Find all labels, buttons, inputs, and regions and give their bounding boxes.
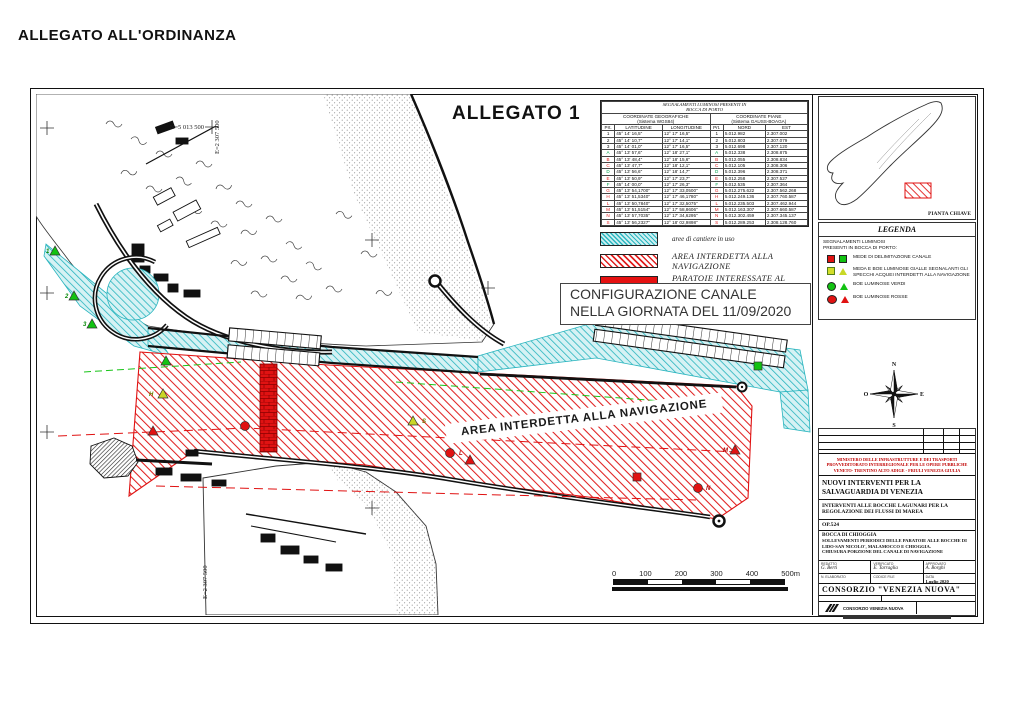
consortium-logo-text: CONSORZIO VENEZIA NUOVA — [843, 606, 904, 611]
scale-bar-base — [612, 587, 788, 591]
legenda-item-label: BOE LUMINOSE ROSSE — [853, 295, 908, 300]
legenda-icon-2 — [839, 268, 847, 275]
scale-tick-label: 400 — [746, 569, 759, 578]
scale-bar-segments — [613, 579, 785, 585]
key-map-label: PIANTA CHIAVE — [928, 211, 971, 217]
legenda-icon-1 — [827, 295, 837, 304]
footer-bar — [843, 615, 951, 619]
barrier-gates-column — [260, 364, 277, 452]
configuration-note: CONFIGURAZIONE CANALE NELLA GIORNATA DEL… — [560, 283, 811, 325]
data-cell: DATA Luglio 2020 — [923, 574, 975, 583]
green-square-marker — [754, 362, 762, 370]
op-code: OP.524 — [819, 519, 975, 530]
legenda-item: BOE LUMINOSE ROSSE — [823, 295, 971, 304]
consortium-name: CONSORZIO "VENEZIA NUOVA" — [819, 583, 975, 595]
grid-label-north: N=5 013 500 — [170, 124, 204, 131]
scale-tick-label: 100 — [639, 569, 652, 578]
marker-label: 2 — [64, 294, 69, 300]
sheet-number-title: ALLEGATO 1 — [452, 103, 581, 125]
compass-north-label: N — [892, 362, 897, 368]
scale-tick-label: 0 — [612, 569, 616, 578]
signature-cell: APPROVATO A. Borghi — [923, 561, 975, 573]
logo-row: CONSORZIO VENEZIA NUOVA — [819, 601, 975, 614]
red-buoy-marker — [694, 484, 703, 493]
scale-tick-label: 200 — [675, 569, 688, 578]
signals-table: SEGNALAMENTI LUMINOSI PRESENTI INBOCCA D… — [600, 100, 809, 227]
lagoon-outline — [819, 97, 973, 217]
marker-label: L — [459, 451, 463, 457]
green-triangle-marker — [87, 319, 97, 328]
ministry-line: VENETO- TRENTINO ALTO ADIGE - FRIULI VEN… — [819, 468, 975, 473]
map-legend-item: AREA INTERDETTA ALLA NAVIGAZIONE — [600, 250, 830, 272]
legenda-icon-2 — [840, 283, 848, 290]
legenda-title: LEGENDA — [819, 223, 975, 237]
subject-line-2: CHIUSURA PORZIONE DEL CANALE DI NAVIGAZI… — [822, 549, 972, 554]
legenda-item-label: MEDE DI DELIMITAZIONE CANALE — [853, 255, 931, 260]
key-map: PIANTA CHIAVE — [818, 96, 976, 220]
subject-line-1: SOLLEVAMENTI PERIODICI DELLE PARATOIE AL… — [822, 538, 972, 549]
key-map-highlight — [905, 183, 931, 198]
compass-rose: N E S O — [862, 356, 926, 430]
grid-label-east-top: E=2 307 500 — [214, 120, 221, 154]
signals-table-title: SEGNALAMENTI LUMINOSI PRESENTI INBOCCA D… — [602, 102, 808, 114]
legenda-item: BOE LUMINOSE VERDI — [823, 282, 971, 291]
scale-tick-label: 500m — [781, 569, 800, 578]
red-buoy-marker — [241, 422, 250, 431]
group-header-plane: COORDINATE PIANE(Sistema GAUSS-BOAGA) — [710, 113, 807, 125]
elaborato-cell: N. ELABORATO — [819, 574, 870, 583]
legend-swatch — [600, 254, 658, 268]
marker-label: N — [706, 486, 711, 492]
meta-row: N. ELABORATO CODICE FILE DATA Luglio 202… — [819, 573, 975, 583]
scale-bar: 0100200300400500m — [612, 569, 802, 591]
compass-west-label: O — [864, 392, 869, 398]
consortium-logo-icon — [824, 603, 840, 613]
red-square-marker — [633, 473, 641, 481]
legenda-item: MEDA E BOE LUMINOSE GIALLE SEGNALANTI GL… — [823, 267, 971, 278]
marker-label: 3 — [83, 322, 87, 328]
legenda-item: MEDE DI DELIMITAZIONE CANALE — [823, 255, 971, 263]
marker-label: S — [422, 419, 426, 425]
legenda-item-label: MEDA E BOE LUMINOSE GIALLE SEGNALANTI GL… — [853, 267, 971, 278]
page-title: ALLEGATO ALL'ORDINANZA — [18, 27, 236, 44]
grid-label-east-bottom: E=2 307 500 — [202, 565, 209, 599]
codice-cell: CODICE FILE — [870, 574, 922, 583]
compass-east-label: E — [920, 392, 924, 398]
legenda-subtitle: SEGNALAMENTI LUMINOSIPRESENTI IN BOCCA D… — [823, 240, 971, 251]
panel-divider — [812, 94, 813, 615]
table-row: S 45° 13' 56,2327" 12° 18' 02,9898" S 5.… — [602, 219, 808, 225]
marker-label: H — [149, 392, 154, 398]
signatures-row: REDATTO G. Berti VERIFICATO E. Tarraglia… — [819, 560, 975, 573]
red-buoy-marker — [446, 449, 455, 458]
legend-label: aree di cantiere in uso — [672, 235, 734, 243]
map-legend-item: aree di cantiere in uso — [600, 228, 830, 250]
legend-swatch — [600, 232, 658, 246]
legend-label: AREA INTERDETTA ALLA NAVIGAZIONE — [672, 251, 830, 271]
revision-strip — [819, 429, 975, 453]
scale-tick-label: 300 — [710, 569, 723, 578]
south-land — [203, 462, 438, 615]
drawing-subject: BOCCA DI CHIOGGIA SOLLEVAMENTI PERIODICI… — [819, 530, 975, 560]
legenda-item-label: BOE LUMINOSE VERDI — [853, 282, 906, 287]
project-subtitle: INTERVENTI ALLE BOCCHE LAGUNARI PER LA R… — [819, 499, 975, 519]
signature-cell: REDATTO G. Berti — [819, 561, 870, 573]
project-title: NUOVI INTERVENTI PER LA SALVAGUARDIA DI … — [819, 475, 975, 499]
title-block: MINISTERO DELLE INFRASTRUTTURE E DEI TRA… — [818, 428, 976, 616]
group-header-geographic: COORDINATE GEOGRAFICHE(Sistema WGS84) — [602, 113, 711, 125]
legenda-icon-2 — [841, 296, 849, 303]
ministry-heading: MINISTERO DELLE INFRASTRUTTURE E DEI TRA… — [819, 453, 975, 475]
signature-cell: VERIFICATO E. Tarraglia — [870, 561, 922, 573]
legenda-icon-2 — [839, 255, 847, 263]
legenda-panel: LEGENDA SEGNALAMENTI LUMINOSIPRESENTI IN… — [818, 222, 976, 320]
